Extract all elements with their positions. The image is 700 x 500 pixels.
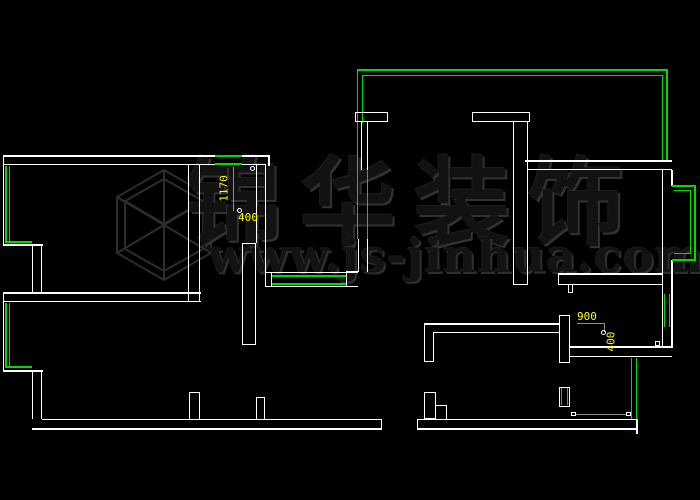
wall-left-2a — [32, 372, 33, 419]
balcony-top-inner — [362, 75, 662, 76]
pillar-step-v — [446, 405, 447, 419]
wall-kitchen-top-b — [434, 332, 560, 333]
window-top-outer — [215, 155, 242, 157]
dimension-label-900: 900 — [577, 311, 597, 322]
wall-right-inner — [662, 170, 663, 348]
bay-right-outer-top — [672, 185, 695, 187]
bay-right-outer-bottom — [672, 259, 695, 261]
wall-bottom-inner-right — [417, 419, 638, 420]
dim-line-balcony — [576, 414, 626, 415]
wall-int2-b — [265, 165, 266, 287]
balcony-right-inner — [662, 75, 663, 161]
wall-left-1a — [32, 246, 33, 293]
hall-window-glass-a — [272, 275, 346, 277]
wall-righttop-outer — [525, 160, 672, 162]
dim-node-top — [250, 166, 255, 171]
wall-bottom-outer-right — [417, 428, 638, 430]
wall-top-endcap — [268, 155, 270, 166]
wall-col-b — [367, 122, 368, 170]
dim-ext-line-1170 — [233, 167, 234, 211]
hall-window-frame-bottom — [265, 286, 358, 287]
window-bay2-b — [9, 303, 10, 366]
dimension-label-1170: 1170 — [219, 171, 230, 207]
pillar-right-green-a — [561, 388, 562, 405]
bay-right-inner-bottom — [674, 253, 690, 254]
window-bay1-sill — [5, 241, 32, 243]
wall-midleft-outer — [3, 292, 201, 294]
bay-right-outer-v — [694, 185, 696, 261]
hall-window-cap-left — [271, 272, 272, 286]
wall-bath-outer — [570, 346, 672, 348]
wall-righttop-inner — [527, 169, 672, 170]
wall-bottom-end — [636, 419, 638, 434]
wall-int3-bottom — [559, 362, 570, 363]
wall-right-outer-a — [671, 170, 673, 186]
wall-bottom-cap-right — [417, 419, 418, 430]
wall-rightmid-outer — [558, 273, 662, 275]
wall-col2-a — [513, 122, 514, 285]
wall-bay1-bottom — [3, 244, 43, 246]
wall-bottom-cap-left — [381, 419, 382, 430]
wall-col2-b — [527, 122, 528, 285]
wall-kitchen-left-a — [424, 323, 425, 362]
bay-right-inner-top — [674, 190, 690, 191]
hall-window-cap-right — [346, 272, 347, 286]
wall-top-outer-left — [3, 155, 215, 157]
window-bay1-b — [9, 166, 10, 242]
window-bay1-a — [5, 166, 7, 242]
wall-midleft-inner — [3, 301, 201, 302]
window-bay2-sill — [5, 366, 32, 368]
wall-int3-top — [559, 315, 570, 316]
duct-b — [255, 243, 256, 345]
wall-kitchen-left-b — [433, 332, 434, 362]
wall-int2-stub-b — [264, 397, 265, 419]
cad-canvas[interactable]: 锦华装饰 www.js-jinhua.com 1170 400 900 400 — [0, 0, 700, 500]
wall-rightmid-inner — [558, 284, 662, 285]
wall-int1-stub-cap — [189, 392, 200, 393]
wall-int2-stub-a — [256, 397, 257, 419]
wall-bottom-outer-left — [32, 428, 382, 430]
wall-bar1 — [355, 112, 388, 122]
wall-top-inner-left — [3, 164, 215, 165]
balustrade-b — [636, 358, 637, 419]
wall-col-jog — [346, 271, 358, 272]
door-jamb-cap — [568, 292, 573, 293]
wall-int2-a — [256, 165, 257, 243]
hall-window-frame-top — [265, 272, 358, 273]
duct-a — [242, 243, 243, 345]
balcony-green-left — [357, 69, 358, 239]
wall-left-2b — [41, 372, 42, 419]
wall-col2-cap — [513, 284, 528, 285]
wall-col-a — [361, 122, 362, 170]
wall-bay2-bottom — [3, 370, 43, 372]
duct-top — [242, 243, 256, 244]
wall-right-outer-b — [671, 260, 673, 348]
wall-bath-inner — [570, 356, 672, 357]
dimension-label-400-right: 400 — [606, 324, 617, 360]
col-window-green — [367, 170, 368, 239]
bay-right-inner-v — [690, 190, 691, 254]
pillar-right-green-b — [567, 388, 568, 405]
wall-kitchen-left-cap — [424, 361, 434, 362]
wall-top-inner-right — [242, 164, 266, 165]
wall-left-1b — [41, 246, 42, 293]
wall-bottom-inner-left — [42, 419, 382, 420]
window-right-a — [664, 294, 665, 327]
wall-bar2 — [472, 112, 530, 122]
wall-int1-stub-b — [199, 392, 200, 419]
wall-kitchen-top-a — [424, 323, 560, 325]
balcony-top-outer — [357, 69, 668, 71]
wall-col-d — [367, 239, 368, 272]
balustrade-a — [631, 358, 632, 419]
wall-int1-b — [199, 165, 200, 302]
wall-int1-stub-a — [189, 392, 190, 419]
window-bay2-a — [5, 303, 7, 366]
wall-left-outer — [3, 155, 4, 245]
wall-left-outer2 — [3, 292, 4, 372]
balcony-right-outer — [666, 69, 668, 161]
wall-int1-a — [188, 165, 189, 302]
wall-int3-b — [569, 315, 570, 363]
wall-rightmid-cap — [558, 273, 559, 285]
hall-window-glass-b — [272, 283, 346, 285]
dim-marker-corner — [655, 341, 660, 346]
window-top-inner — [215, 163, 242, 165]
dim-marker-balcony-b — [626, 412, 631, 416]
window-right-b — [669, 294, 670, 327]
duct-bottom — [242, 344, 256, 345]
wall-col-c — [358, 239, 359, 272]
wall-int2-stub-cap — [256, 397, 265, 398]
dimension-label-400-left: 400 — [238, 212, 258, 223]
pillar-left — [424, 392, 436, 419]
dim-line-900 — [577, 323, 605, 324]
wall-top-outer-right — [242, 155, 270, 157]
